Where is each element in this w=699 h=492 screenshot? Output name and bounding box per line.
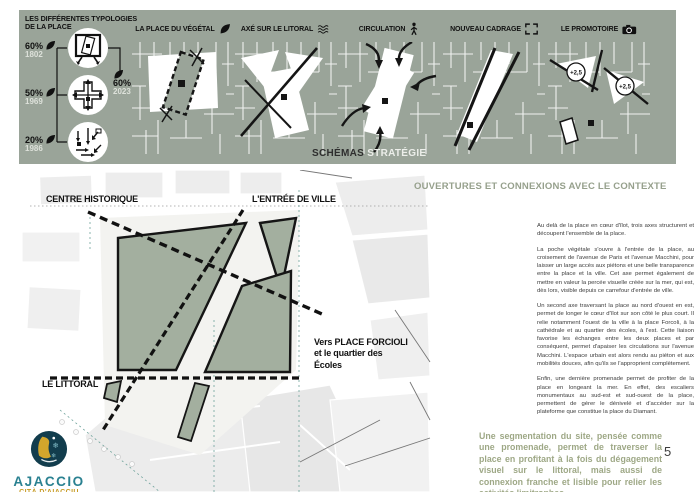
leaf-icon [219, 23, 231, 35]
body-paragraph: Enfin, une dernière promenade permet de … [537, 375, 694, 416]
elevation-badge-value: +2,5 [570, 71, 583, 77]
framing-icon [525, 23, 538, 35]
leaf-icon [45, 134, 56, 145]
body-paragraph: La poche végétale s'ouvre à l'entrée de … [537, 246, 694, 296]
plan-label-vers-forcioli: Vers PLACE FORCIOLI et le quartier des É… [314, 337, 408, 371]
body-paragraph: Au delà de la place en cœur d'îlot, troi… [537, 222, 694, 239]
typology-diagram-network [68, 122, 108, 162]
schema-panel-promontoire: LE PROMOTOIRE +2,5 +2,5 [547, 22, 651, 162]
elevation-badge-value: +2,5 [619, 85, 632, 91]
schemas-caption-light: STRATÉGIE [367, 148, 426, 159]
panel-vegetal-label: LA PLACE DU VÉGÉTAL [135, 26, 214, 33]
plan-parcel-sliver-west [104, 381, 121, 402]
body-paragraph: Un second axe traversant la place au nor… [537, 302, 694, 368]
typology-diagram-crossroads [68, 75, 108, 115]
highlight-statement: Une segmentation du site, pensée comme u… [479, 431, 662, 492]
typology-stat-1969: 50% 1969 [25, 87, 59, 106]
pedestrian-icon [409, 22, 419, 36]
slide-page: LES DIFFÉRENTES TYPOLOGIES DE LA PLACE 6… [0, 0, 699, 492]
section-title: OUVERTURES ET CONNEXIONS AVEC LE CONTEXT… [414, 181, 690, 192]
waves-icon [317, 24, 331, 34]
camera-icon [622, 24, 637, 35]
svg-text:❄: ❄ [51, 453, 56, 460]
leaf-icon [45, 40, 56, 51]
leaf-icon [45, 87, 56, 98]
plan-label-le-littoral: LE LITTORAL [42, 379, 98, 390]
typology-stat-1802: 60% 1802 [25, 40, 59, 59]
body-text-column: Au delà de la place en cœur d'îlot, troi… [537, 222, 694, 424]
svg-text:❄: ❄ [52, 441, 58, 450]
ajaccio-crest-icon: ❄ ❄ [30, 430, 68, 468]
schemas-caption: SCHÉMAS STRATÉGIE [312, 148, 426, 159]
schemas-caption-bold: SCHÉMAS [312, 148, 364, 159]
schema-map-promontoire: +2,5 +2,5 [548, 42, 650, 154]
schema-panel-circulation: CIRCULATION [337, 22, 441, 162]
plan-label-entree-de-ville: L'ENTRÉE DE VILLE [252, 194, 336, 205]
ajaccio-logo: ❄ ❄ AJACCIO CITÀ D'AIACCIU [6, 430, 92, 492]
schema-map-circulation [338, 42, 440, 154]
panel-cadrage-label: NOUVEAU CADRAGE [450, 26, 521, 33]
typology-stat-1986: 20% 1986 [25, 134, 59, 153]
schema-panel-littoral: AXÉ SUR LE LITORAL [234, 22, 338, 162]
typology-diagram-courtyard [68, 28, 108, 68]
panel-littoral-label: AXÉ SUR LE LITORAL [241, 26, 313, 33]
schema-panel-cadrage: NOUVEAU CADRAGE [442, 22, 546, 162]
panel-circulation-label: CIRCULATION [359, 26, 406, 33]
page-number: 5 [664, 444, 671, 459]
panel-promontoire-label: LE PROMOTOIRE [561, 26, 618, 33]
schema-map-vegetal [132, 42, 234, 154]
strategy-banner: LES DIFFÉRENTES TYPOLOGIES DE LA PLACE 6… [19, 10, 676, 164]
schema-panel-vegetal: LA PLACE DU VÉGÉTAL [131, 22, 235, 162]
schema-map-littoral [235, 42, 337, 154]
plan-label-centre-historique: CENTRE HISTORIQUE [46, 194, 138, 205]
logo-title: AJACCIO [6, 474, 92, 489]
schema-map-cadrage [443, 42, 545, 154]
